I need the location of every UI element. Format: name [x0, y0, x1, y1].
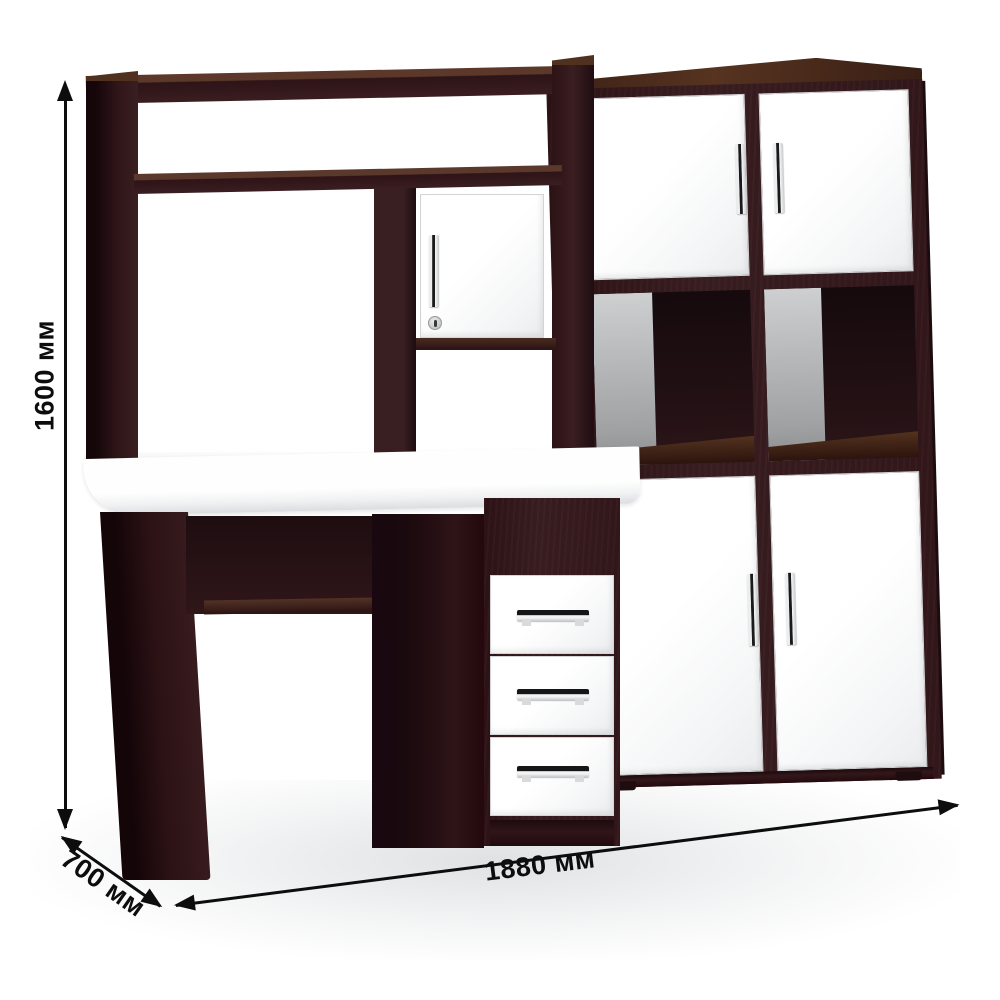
shelving-cabinet — [546, 55, 943, 811]
product-image: 1600 мм 700 мм 1880 мм — [0, 0, 1000, 1000]
hutch-left-post — [86, 80, 138, 462]
height-dimension-line — [64, 86, 67, 828]
cubby-inner-wall — [764, 288, 826, 462]
cabinet-foot — [610, 781, 636, 791]
desk-niche-shelf — [204, 596, 486, 615]
cabinet-front-frame — [546, 79, 941, 789]
arrowhead-up-icon — [57, 80, 73, 101]
door-handle-icon — [747, 574, 759, 646]
cubby-inner-wall — [592, 293, 657, 467]
hutch-under-door-shelf — [416, 338, 556, 350]
door-handle-icon — [429, 235, 439, 307]
cabinet-door-top-left — [587, 94, 750, 280]
door-handle-icon — [785, 573, 797, 645]
hutch-divider — [374, 188, 416, 458]
hutch-shelf — [134, 165, 562, 194]
cabinet-door-bottom-right — [769, 471, 927, 771]
height-dimension-label: 1600 мм — [30, 271, 61, 481]
cabinet-open-shelf-right — [764, 285, 919, 461]
floor-shadow — [30, 780, 960, 960]
door-handle-icon — [773, 143, 785, 213]
cabinet-open-shelf-left — [592, 290, 755, 466]
hutch-door — [420, 194, 544, 338]
cabinet-foot — [896, 771, 922, 781]
desktop-back-edge — [84, 452, 566, 470]
cabinet-door-bottom-left — [597, 476, 763, 776]
hutch-top-beam — [86, 65, 594, 104]
door-handle-icon — [735, 144, 747, 214]
desk-niche-back — [186, 516, 486, 614]
lock-icon — [428, 316, 442, 330]
cabinet-door-top-right — [759, 89, 914, 275]
